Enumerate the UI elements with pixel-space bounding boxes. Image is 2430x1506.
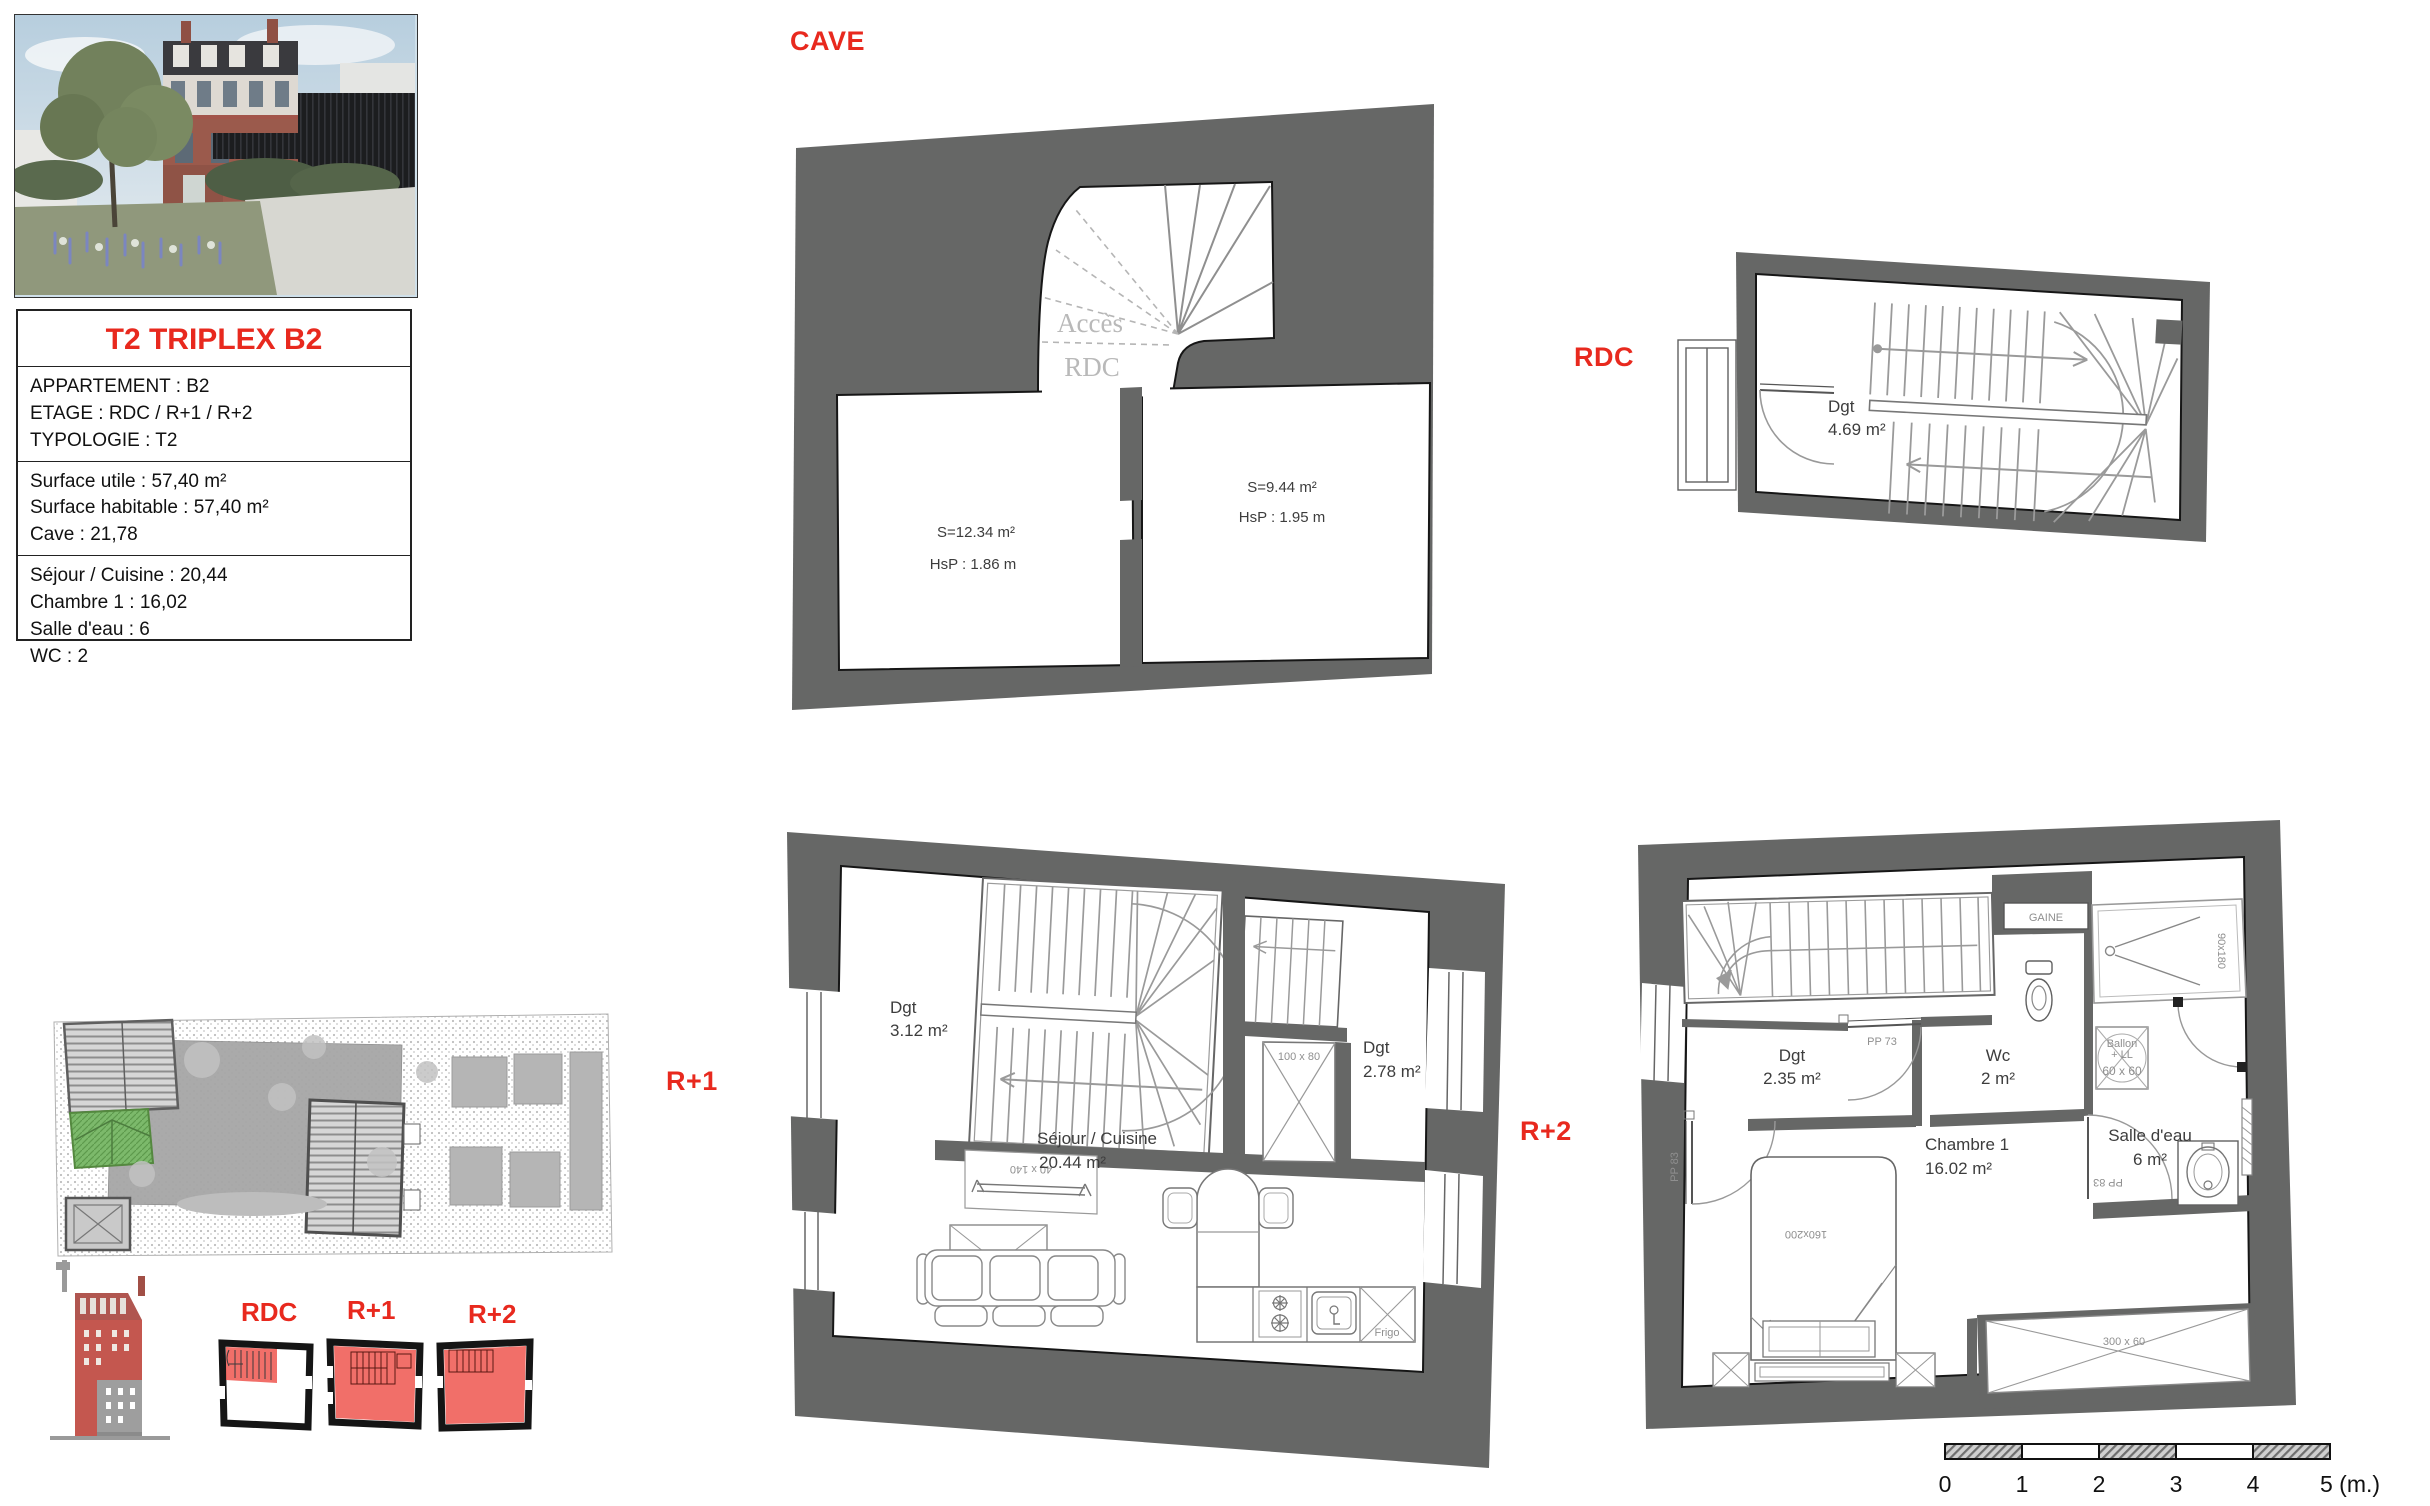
r2-bed: 160x200 [1751, 1157, 1896, 1381]
info-identity-section: APPARTEMENT : B2 ETAGE : RDC / R+1 / R+2… [18, 366, 410, 461]
site-plan [52, 1012, 618, 1265]
cave-partition-lower [1120, 539, 1142, 667]
photo-render [15, 15, 415, 295]
key-rdc-highlight [226, 1347, 277, 1383]
info-cave: Cave : 21,78 [30, 522, 410, 549]
r1-dgt2-area: 2.78 m² [1363, 1062, 1421, 1081]
ballon-dim: 60 x 60 [2102, 1064, 2142, 1078]
scale-tick-4: 4 [2247, 1471, 2260, 1497]
r2-wc-area: 2 m² [1981, 1069, 2015, 1088]
r1-plan: 100 x 80 40 x 140 [785, 820, 1510, 1475]
r2-radiator [2242, 1099, 2252, 1175]
key-r1-window3 [415, 1376, 422, 1388]
r2-dgt-label: Dgt [1779, 1046, 1806, 1065]
building-photo [14, 14, 418, 298]
r1-kitchen-counter: Frigo [1197, 1287, 1415, 1342]
key-plan-rdc-label: RDC [241, 1297, 297, 1328]
gaine-label: GAINE [2029, 912, 2063, 924]
scale-bar-segments [1945, 1444, 2330, 1459]
sink-icon [1312, 1292, 1356, 1334]
r2-wall-stub [1967, 1318, 1977, 1391]
cave-room1-area: S=12.34 m² [937, 524, 1015, 541]
r1-staircase [969, 878, 1247, 1159]
r1-sejour-area: 20.44 m² [1039, 1153, 1106, 1172]
r2-wc-label: Wc [1986, 1046, 2011, 1065]
r1-floor-label: R+1 [666, 1066, 718, 1097]
svg-text:RDC: RDC [1064, 352, 1120, 382]
key-plan-rdc [215, 1338, 315, 1437]
r2-wall-sde-left [2084, 929, 2093, 1116]
cave-plan: Accès RDC S=12.34 m² HsP : 1.86 m S=9.44… [780, 92, 1480, 722]
scale-tick-0: 0 [1939, 1471, 1952, 1497]
key-plan-r1-label: R+1 [347, 1295, 395, 1326]
apartment-info-table: T2 TRIPLEX B2 APPARTEMENT : B2 ETAGE : R… [16, 309, 412, 641]
photo-fence [213, 133, 299, 159]
door-pp73-dim: PP 73 [1867, 1036, 1897, 1048]
rdc-stair-newel [2155, 319, 2182, 344]
r2-sde-label: Salle d'eau [2108, 1126, 2192, 1145]
cave-room2-height: HsP : 1.95 m [1239, 509, 1325, 526]
scale-tick-3: 3 [2170, 1471, 2183, 1497]
svg-text:Accès: Accès [1057, 308, 1123, 338]
info-title-row: T2 TRIPLEX B2 [18, 311, 410, 366]
info-sejour: Séjour / Cuisine : 20,44 [30, 563, 410, 590]
r1-dgt2-label: Dgt [1363, 1038, 1390, 1057]
r1-dgt1-area: 3.12 m² [890, 1021, 948, 1040]
key-r2-window2 [525, 1380, 532, 1390]
r1-wall-stair-right [1223, 880, 1245, 1166]
info-wc: WC : 2 [30, 644, 410, 671]
frigo-label: Frigo [1374, 1327, 1399, 1339]
r2-ballon: Ballon + LL 60 x 60 [2096, 1027, 2148, 1089]
r2-dgt-area: 2.35 m² [1763, 1069, 1821, 1088]
scale-bar: 0 1 2 3 4 5 (m.) [1888, 1434, 2398, 1506]
r2-chambre-label: Chambre 1 [1925, 1135, 2009, 1154]
rdc-plan: Dgt 4.69 m² [1650, 240, 2240, 565]
elevation-lamppost [56, 1260, 70, 1292]
r2-wall-landing-right [1921, 1015, 1992, 1027]
r1-wall-duct-right [1335, 1042, 1351, 1162]
door-pp83-dim: PP 83 [1669, 1152, 1681, 1182]
info-surface-utile: Surface utile : 57,40 m² [30, 469, 410, 496]
site-hedge [177, 1192, 327, 1216]
site-building-sw [66, 1198, 130, 1250]
cave-floor-label: CAVE [790, 26, 865, 57]
key-r2-window [436, 1376, 443, 1388]
scale-bar-ticks: 0 1 2 3 4 5 (m.) [1939, 1471, 2380, 1497]
plan-sheet: T2 TRIPLEX B2 APPARTEMENT : B2 ETAGE : R… [0, 0, 2430, 1506]
door-pp83b-dim: PP 83 [2093, 1176, 2123, 1188]
info-chambre: Chambre 1 : 16,02 [30, 590, 410, 617]
elevation-drawing [50, 1260, 185, 1470]
key-plan-r2-label: R+2 [468, 1299, 516, 1330]
r1-dgt1-label: Dgt [890, 998, 917, 1017]
cave-opening [1042, 384, 1170, 398]
info-apartment: APPARTEMENT : B2 [30, 374, 410, 401]
info-surface-habitable: Surface habitable : 57,40 m² [30, 495, 410, 522]
r1-skylight: 100 x 80 [1263, 1042, 1335, 1162]
key-r2-highlight [444, 1346, 526, 1424]
r1-sofa [917, 1250, 1125, 1326]
r2-long-window: 300 x 60 [1986, 1309, 2250, 1393]
r2-window-dim: 300 x 60 [2103, 1336, 2145, 1348]
key-r1-window2 [326, 1392, 333, 1404]
scale-tick-5: 5 (m.) [2320, 1471, 2380, 1497]
cave-partition-upper [1120, 387, 1142, 501]
key-plan-r1 [323, 1336, 427, 1437]
info-surfaces-section: Surface utile : 57,40 m² Surface habitab… [18, 461, 410, 556]
r2-plan: GAINE 300 x 60 90x180 [1630, 815, 2310, 1445]
r2-chambre-area: 16.02 m² [1925, 1159, 1992, 1178]
elevation-building [75, 1276, 145, 1437]
r1-sejour-label: Séjour / Cuisine [1037, 1129, 1157, 1148]
key-plan-r2 [433, 1338, 537, 1437]
r2-gaine: GAINE [2004, 903, 2088, 929]
scale-tick-1: 1 [2016, 1471, 2029, 1497]
shower-dim: 90x180 [2215, 933, 2227, 969]
key-rdc-window2 [305, 1376, 312, 1389]
r2-staircase [1682, 893, 1995, 1003]
info-rooms-section: Séjour / Cuisine : 20,44 Chambre 1 : 16,… [18, 555, 410, 677]
rdc-interior [1756, 274, 2182, 520]
r2-floor-label: R+2 [1520, 1116, 1572, 1147]
ballon-line2: + LL [2111, 1049, 2133, 1061]
scale-tick-2: 2 [2093, 1471, 2106, 1497]
r1-stair-upper-flight [1239, 916, 1342, 1027]
cave-room2-area: S=9.44 m² [1247, 479, 1317, 496]
rdc-dgt-area: 4.69 m² [1828, 420, 1886, 439]
info-typology: TYPOLOGIE : T2 [30, 428, 410, 455]
rdc-entry-window [1678, 340, 1736, 490]
rdc-floor-label: RDC [1574, 342, 1634, 373]
r1-skylight-dim: 100 x 80 [1278, 1051, 1320, 1063]
rdc-dgt-label: Dgt [1828, 397, 1855, 416]
r2-left-window [1640, 983, 1686, 1083]
r2-washbasin [2178, 1141, 2238, 1205]
key-r1-window [326, 1366, 333, 1378]
info-floor: ETAGE : RDC / R+1 / R+2 [30, 401, 410, 428]
key-rdc-window [218, 1386, 225, 1399]
r2-toilet [2026, 961, 2052, 1021]
apartment-title: T2 TRIPLEX B2 [106, 323, 323, 356]
bed-dim: 160x200 [1785, 1228, 1827, 1240]
info-salle-eau: Salle d'eau : 6 [30, 617, 410, 644]
site-building-nw [64, 1020, 178, 1113]
cave-room1-height: HsP : 1.86 m [930, 556, 1016, 573]
r2-sde-area: 6 m² [2133, 1150, 2167, 1169]
